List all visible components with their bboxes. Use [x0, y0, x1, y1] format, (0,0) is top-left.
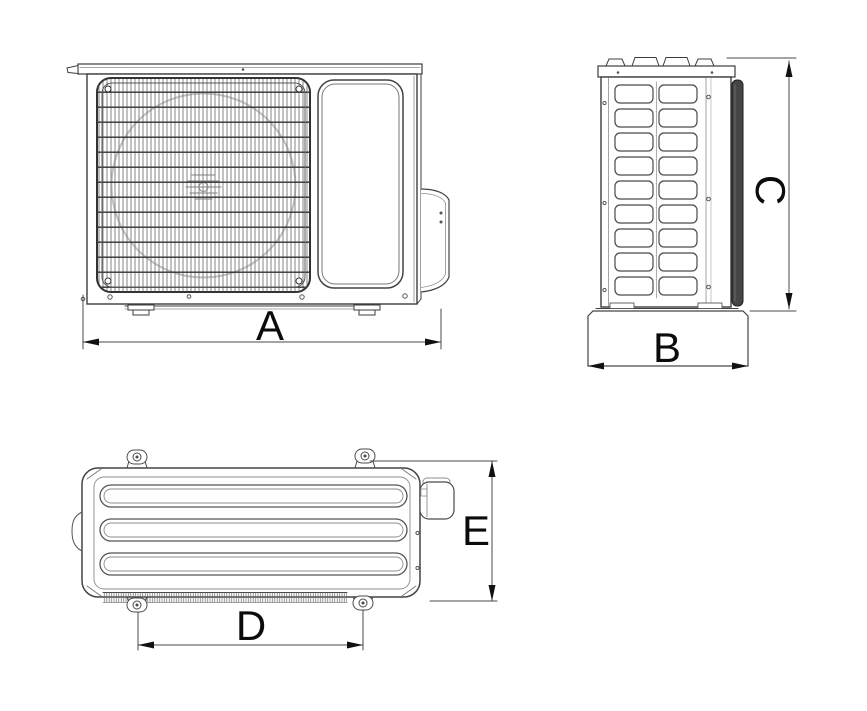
dimension-a-label: A: [256, 302, 284, 349]
left-handle-bump: [72, 512, 82, 551]
arrowhead-down: [489, 585, 496, 601]
arrowhead-left: [83, 339, 99, 346]
dimension-drawing: A: [0, 0, 867, 711]
dimension-d: D: [138, 602, 363, 650]
drawing-canvas: A: [0, 0, 867, 711]
arrowhead-down: [786, 293, 793, 309]
arrowhead-right: [425, 339, 441, 346]
mounting-bolt-bottom-right: [353, 596, 373, 610]
top-view: E D: [72, 449, 497, 650]
dimension-e-label: E: [462, 507, 490, 554]
dimension-b-label: B: [653, 324, 681, 371]
dimension-c-label: C: [747, 175, 794, 205]
arrowhead-left: [138, 642, 154, 649]
side-view: C B: [588, 58, 796, 372]
arrowhead-right: [347, 642, 363, 649]
fan-grille: [97, 78, 310, 292]
side-vent-grid: [612, 82, 700, 298]
mounting-bolt-top-right: [355, 449, 375, 468]
front-view: A: [67, 64, 449, 349]
side-valve-cover: [421, 189, 449, 292]
condenser-coil: [732, 80, 743, 306]
dimension-d-label: D: [236, 602, 266, 649]
top-outline: [82, 468, 420, 597]
front-foot-left: [128, 305, 154, 315]
mounting-bolt-top-left: [127, 450, 147, 468]
front-foot-right: [354, 305, 380, 315]
mounting-bolt-bottom-left: [127, 597, 147, 612]
service-panel: [318, 80, 403, 288]
valve-box: [420, 478, 454, 519]
arrowhead-up: [489, 461, 496, 477]
front-top-panel: [67, 64, 422, 74]
arrowhead-up: [786, 61, 793, 77]
